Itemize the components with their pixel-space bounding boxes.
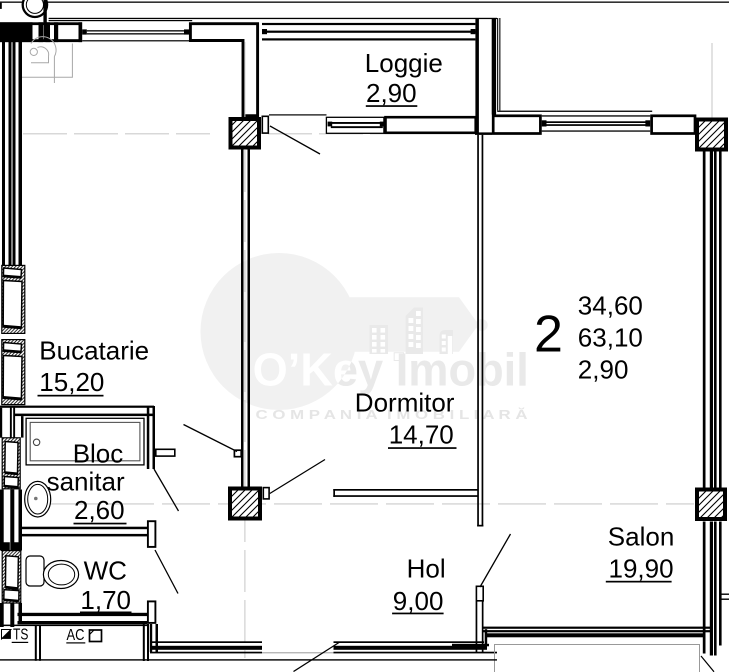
svg-text:2,60: 2,60: [74, 495, 125, 525]
svg-text:15,20: 15,20: [39, 367, 104, 397]
svg-text:AC: AC: [67, 627, 85, 644]
svg-text:14,70: 14,70: [389, 419, 454, 449]
svg-text:2,90: 2,90: [366, 78, 417, 108]
svg-text:19,90: 19,90: [609, 553, 674, 583]
svg-text:63,10: 63,10: [578, 323, 643, 353]
svg-text:Bucatarie: Bucatarie: [39, 336, 149, 366]
svg-text:1,70: 1,70: [80, 585, 131, 615]
svg-text:sanitar: sanitar: [47, 467, 125, 497]
svg-text:Salon: Salon: [608, 522, 675, 552]
svg-text:Dormitor: Dormitor: [355, 388, 455, 418]
svg-text:Loggie: Loggie: [365, 48, 443, 78]
svg-text:Bloc: Bloc: [73, 438, 124, 468]
svg-text:34,60: 34,60: [578, 290, 643, 320]
svg-text:9,00: 9,00: [393, 586, 444, 616]
svg-text:2,90: 2,90: [578, 355, 629, 385]
svg-text:WC: WC: [84, 555, 127, 585]
svg-text:Hol: Hol: [407, 553, 446, 583]
svg-text:2: 2: [534, 306, 563, 364]
svg-text:TS: TS: [13, 627, 28, 644]
